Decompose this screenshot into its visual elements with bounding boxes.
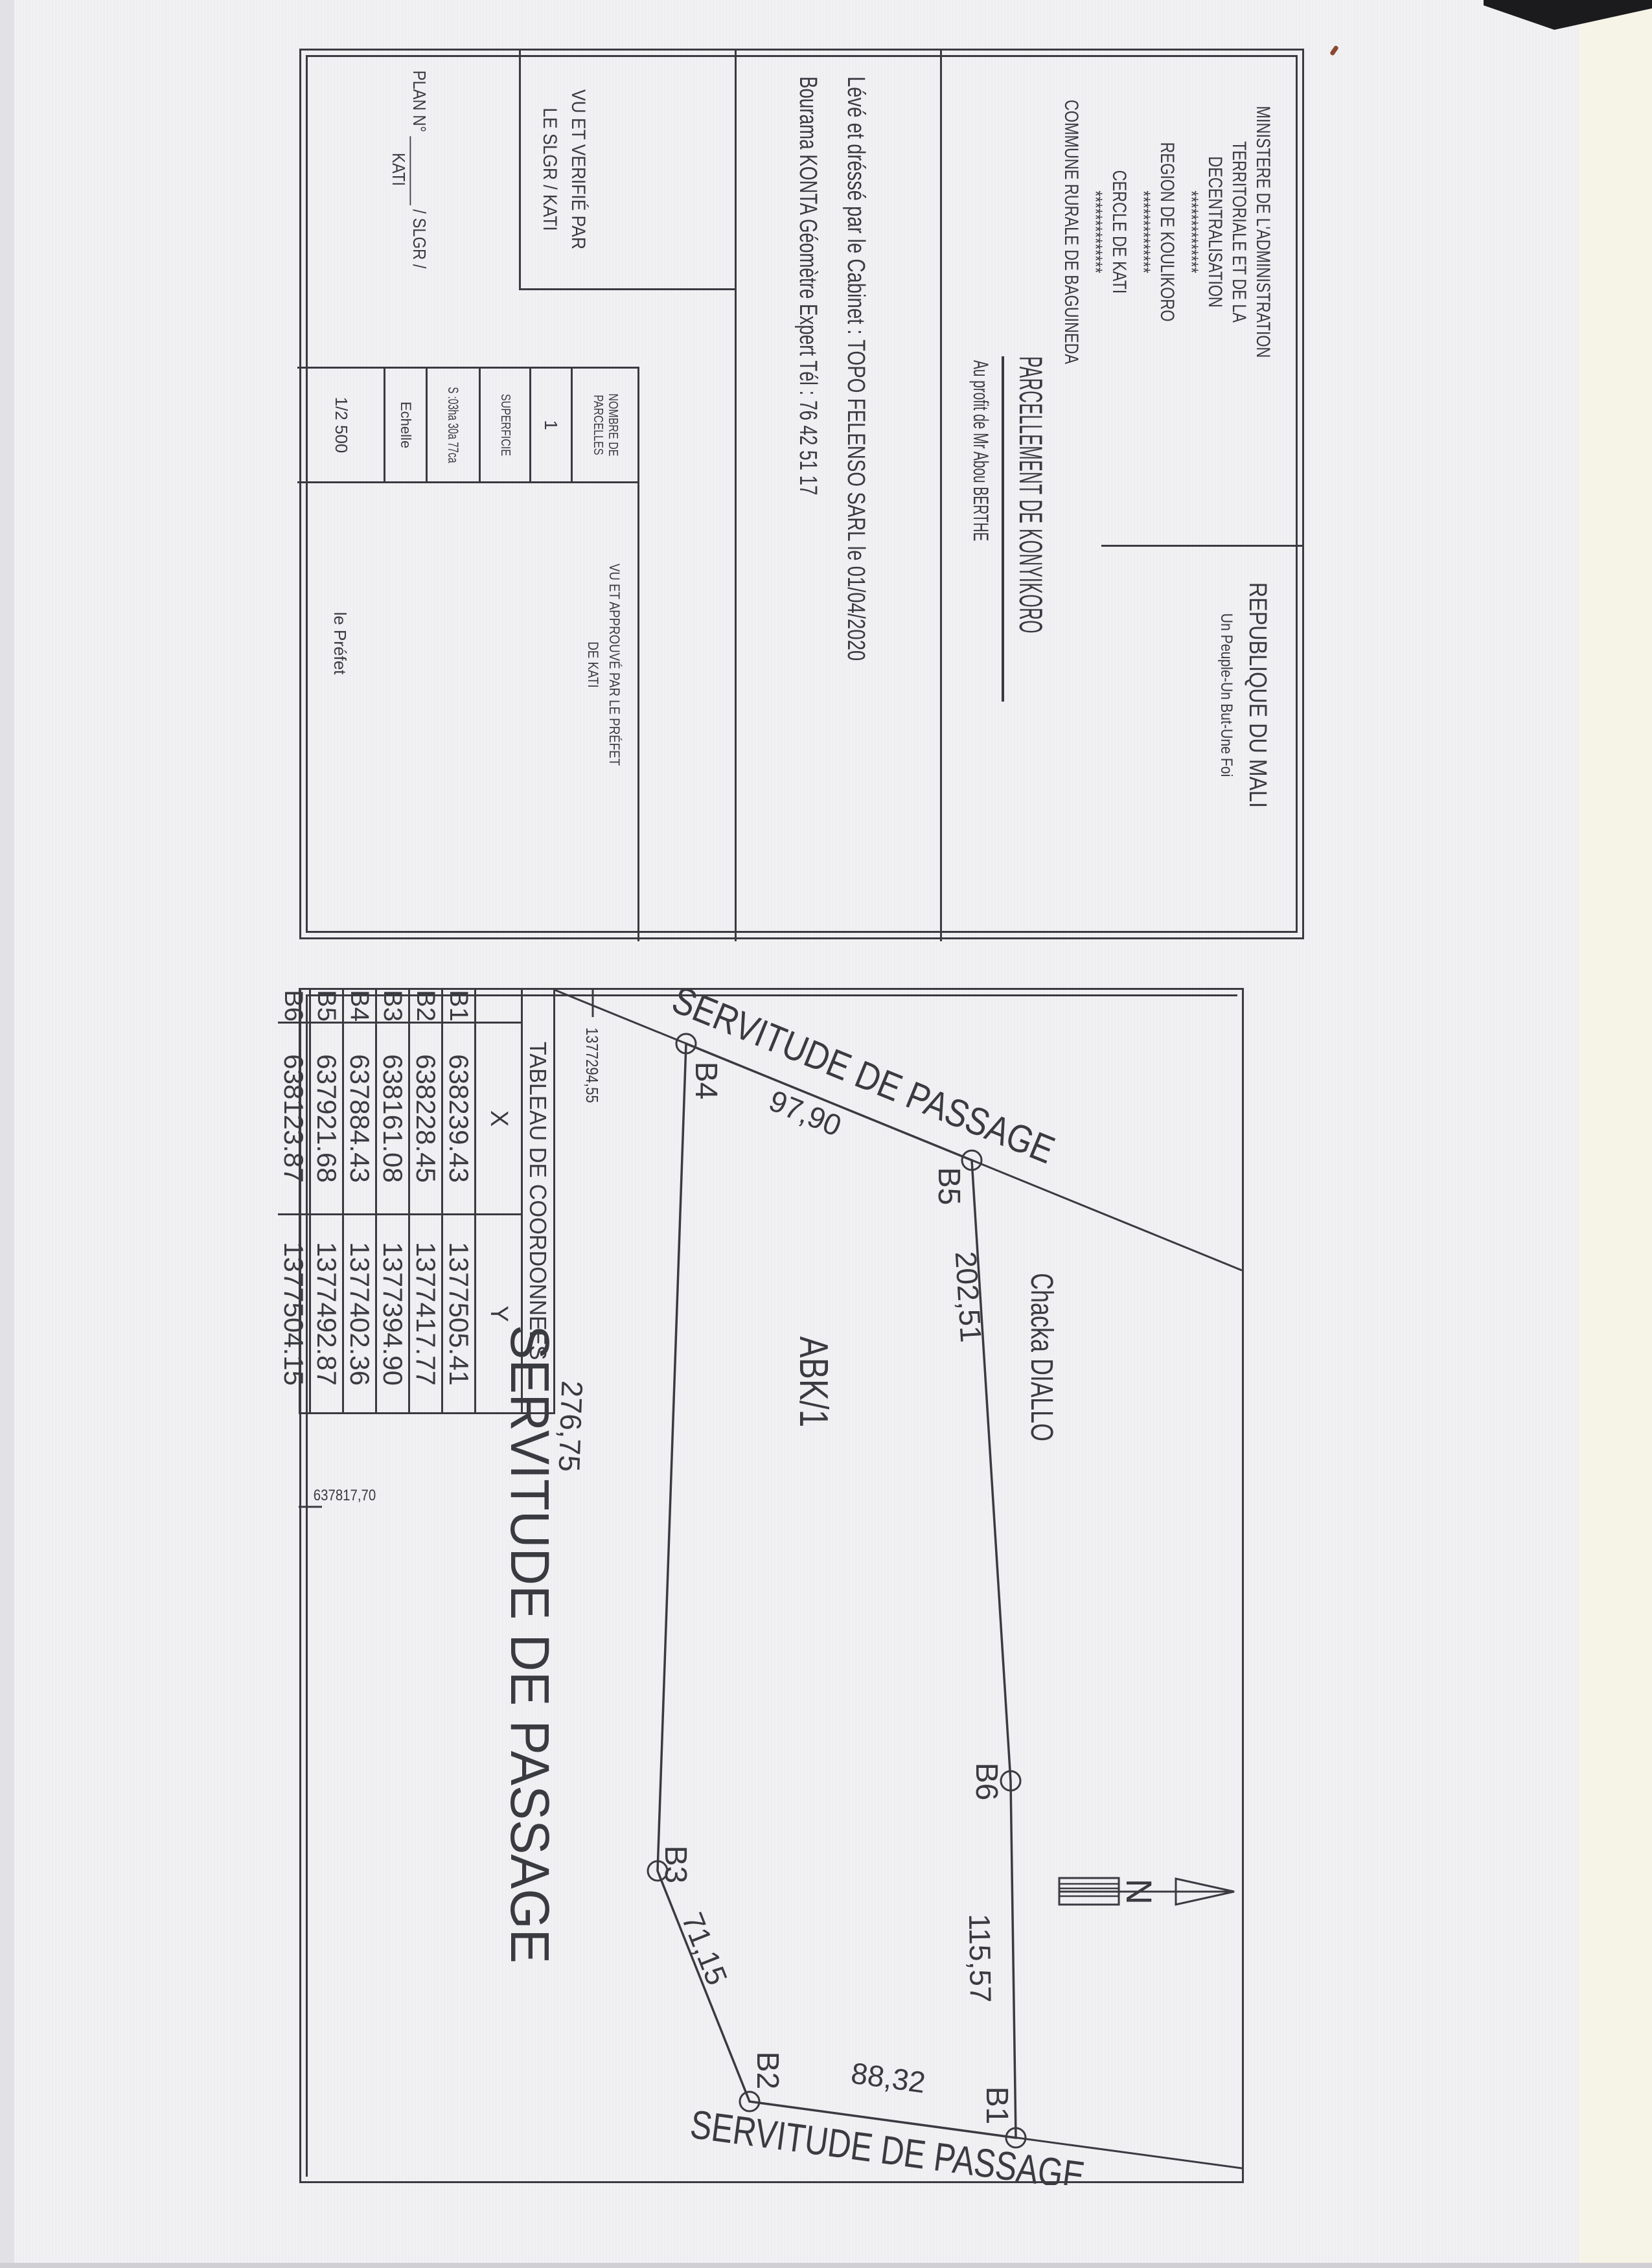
republic-heading: REPUBLIQUE DU MALI Un Peuple-Un But-Une … xyxy=(1217,571,1271,819)
scanner-edge-left xyxy=(0,0,14,2268)
parcels-label: NOMBRE DE PARCELLES xyxy=(590,380,620,470)
parcels-value: 1 xyxy=(541,420,562,430)
ministry-line: MINISTERE DE L'ADMINISTRATION xyxy=(1251,75,1275,389)
scale-label-cell: Echelle xyxy=(385,369,426,481)
title-rule-1 xyxy=(940,51,942,941)
approved-line: VU ET APPROUVÉ PAR LE PRÉFET xyxy=(604,564,626,766)
paper-speck xyxy=(1329,45,1339,56)
scale-value: 1/2 500 xyxy=(332,397,352,453)
servitude-label-bottom: SERVITUDE DE PASSAGE xyxy=(688,2102,1087,2185)
area-value: S :03ha 30a 77ca xyxy=(445,387,462,463)
servitude-label-top: SERVITUDE DE PASSAGE xyxy=(666,990,1061,1172)
area-value-cell: S :03ha 30a 77ca xyxy=(428,387,479,463)
scale-label: Echelle xyxy=(397,402,414,448)
verified-line: VU ET VERIFIÉ PAR xyxy=(564,89,592,249)
edge-length-b6b1: 115,57 xyxy=(963,1914,998,2003)
approved-by-cell: VU ET APPROUVÉ PAR LE PRÉFET DE KATI xyxy=(573,510,635,819)
vertex-label-b4: B4 xyxy=(689,1062,723,1100)
plan-title: PARCELLEMENT DE KONYIKORO xyxy=(1012,356,1050,634)
servitude-label-left: SERVITUDE DE PASSAGE xyxy=(499,1325,560,1964)
verified-by-cell: VU ET VERIFIÉ PAR LE SLGR / KATI xyxy=(522,65,606,274)
approved-line: DE KATI xyxy=(583,641,604,687)
parcel-id-label: ABK/1 xyxy=(792,1336,837,1428)
plan-drawing-area: TABLEAU DE COORDONNEES X Y B1 638239.43 … xyxy=(299,988,1244,2183)
plan-subtitle: Au profit de Mr Abou BERTHE xyxy=(969,360,992,541)
area-label: SUPERFICIE xyxy=(498,394,512,456)
vertex-label-b6: B6 xyxy=(969,1763,1004,1801)
surveyor-line-1: Lévé et dréssé par le Cabinet : TOPO FEL… xyxy=(842,76,869,661)
edge-length-b5b6: 202,51 xyxy=(949,1250,989,1344)
north-arrow: N xyxy=(1059,1878,1234,1905)
grid-x-label: 637817,70 xyxy=(314,1486,376,1504)
north-arrow-letter: N xyxy=(1119,1879,1160,1905)
grid-y-label: 1377294,55 xyxy=(582,1027,601,1103)
grid-line xyxy=(519,288,737,290)
vertex-label-b1: B1 xyxy=(980,2087,1014,2125)
area-label-cell: SUPERFICIE xyxy=(481,380,529,470)
ministry-line: ************** xyxy=(1131,75,1155,389)
parcels-value-cell: 1 xyxy=(531,369,571,481)
ministry-heading: MINISTERE DE L'ADMINISTRATION TERRITORIA… xyxy=(1059,75,1275,389)
ministry-line: ************** xyxy=(1179,75,1203,389)
edge-length-b1b2: 88,32 xyxy=(849,2056,928,2100)
republic-motto: Un Peuple-Un But-Une Foi xyxy=(1217,571,1235,819)
edge-length-b2b3: 71,15 xyxy=(675,1908,734,1989)
plan-number-cell: PLAN N° ________ / SLGR / KATI xyxy=(297,69,521,271)
prefect-label: le Préfet xyxy=(330,612,350,675)
parcel-drawing: B1 B2 B3 B4 B5 B6 97,90 202,51 115,57 88… xyxy=(297,990,1242,2185)
vertex-label-b5: B5 xyxy=(932,1167,966,1206)
ministry-line: TERRITORIALE ET DE LA DECENTRALISATION xyxy=(1203,75,1251,389)
ministry-line: COMMUNE RURALE DE BAGUINEDA xyxy=(1059,75,1083,389)
grid-line xyxy=(637,367,639,941)
scanner-edge-bottom xyxy=(0,2263,1652,2268)
neighbor-name-label: Chacka DIALLO xyxy=(1025,1273,1059,1441)
ministry-line: CERCLE DE KATI xyxy=(1107,75,1131,389)
prefect-cell: le Préfet xyxy=(317,481,363,805)
header-divider xyxy=(1101,545,1302,547)
title-rule-2 xyxy=(735,51,737,941)
verified-line: LE SLGR / KATI xyxy=(535,108,564,231)
plan-number: PLAN N° ________ / SLGR / KATI xyxy=(389,69,430,271)
ministry-line: REGION DE KOULIKORO xyxy=(1155,75,1179,389)
vertex-label-b3: B3 xyxy=(658,1846,693,1884)
plan-title-underline xyxy=(1002,356,1004,702)
scale-value-cell: 1/2 500 xyxy=(299,369,384,481)
republic-title: REPUBLIQUE DU MALI xyxy=(1243,571,1271,819)
title-block: MINISTERE DE L'ADMINISTRATION TERRITORIA… xyxy=(299,49,1304,939)
parcels-label-cell: NOMBRE DE PARCELLES xyxy=(573,380,637,470)
scanned-cadastral-plan: { "header": { "ministry_lines": [ "MINIS… xyxy=(0,0,1652,2268)
ministry-line: ************** xyxy=(1083,75,1107,389)
vertex-label-b2: B2 xyxy=(750,2052,785,2090)
paper-edge-strip xyxy=(1579,0,1652,2268)
surveyor-line-2: Bourama KONTA Géomètre Expert Tél : 76 4… xyxy=(794,76,821,496)
